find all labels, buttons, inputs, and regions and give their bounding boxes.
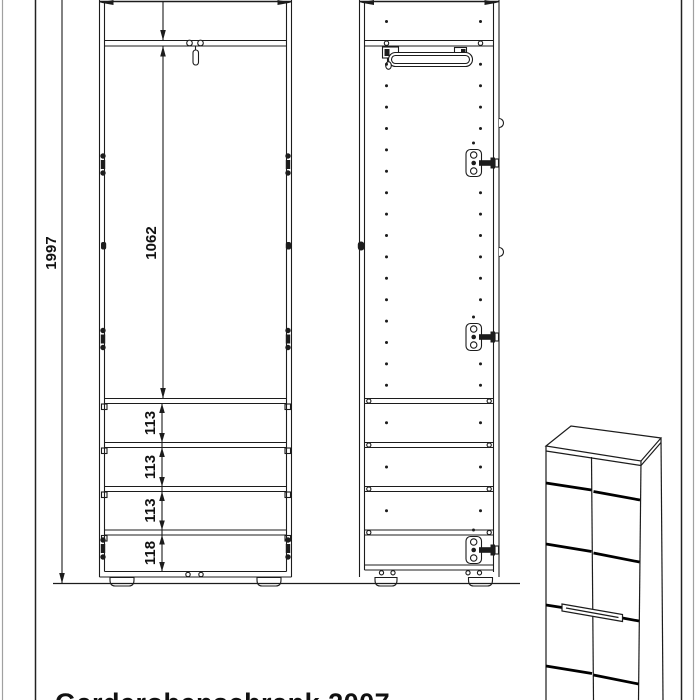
perspective-view bbox=[546, 426, 663, 700]
shelves-front bbox=[102, 399, 291, 542]
dowel-mark bbox=[499, 248, 504, 257]
coat-hook-icon bbox=[187, 40, 204, 65]
total-height-label: 1997 bbox=[43, 236, 60, 269]
adjustable-foot bbox=[375, 578, 397, 587]
shelf-gap-bottom-label: 118 bbox=[142, 541, 159, 565]
shelf-pin-holes bbox=[385, 20, 482, 512]
shelf-gap-1-label: 113 bbox=[142, 411, 159, 435]
width-dimension-arrows bbox=[100, 0, 292, 5]
pullout-rail-icon bbox=[383, 47, 473, 69]
wall-connector-mark bbox=[101, 242, 106, 250]
dimension-total-height: 1997 bbox=[43, 0, 65, 584]
sheet-frame bbox=[3, 0, 694, 700]
shelf-gap-3-label: 113 bbox=[142, 498, 159, 522]
side-view bbox=[358, 0, 504, 586]
door-gap bbox=[592, 457, 594, 700]
adjustable-foot bbox=[110, 578, 134, 587]
adjustable-foot bbox=[469, 578, 493, 587]
shelves-side bbox=[365, 399, 494, 536]
drawing-canvas: 1997 bbox=[0, 0, 700, 700]
hinge-icon bbox=[100, 153, 291, 559]
upper-compartment-label: 1062 bbox=[143, 226, 160, 259]
dimension-shelf-gaps: 113 113 113 118 bbox=[142, 404, 165, 572]
dimension-upper-compartment: 1062 bbox=[143, 2, 166, 399]
technical-drawing-page: 1997 bbox=[0, 0, 700, 700]
depth-dimension-arrows bbox=[360, 0, 499, 5]
front-view: 1062 bbox=[100, 0, 292, 586]
caption: Garderobenschrank 2007 bbox=[55, 688, 390, 700]
wall-connector-mark bbox=[358, 242, 365, 251]
dowel-mark bbox=[499, 119, 504, 128]
shelf-gap-2-label: 113 bbox=[142, 455, 159, 479]
wall-connector-mark bbox=[286, 242, 291, 250]
adjustable-foot bbox=[257, 578, 281, 587]
